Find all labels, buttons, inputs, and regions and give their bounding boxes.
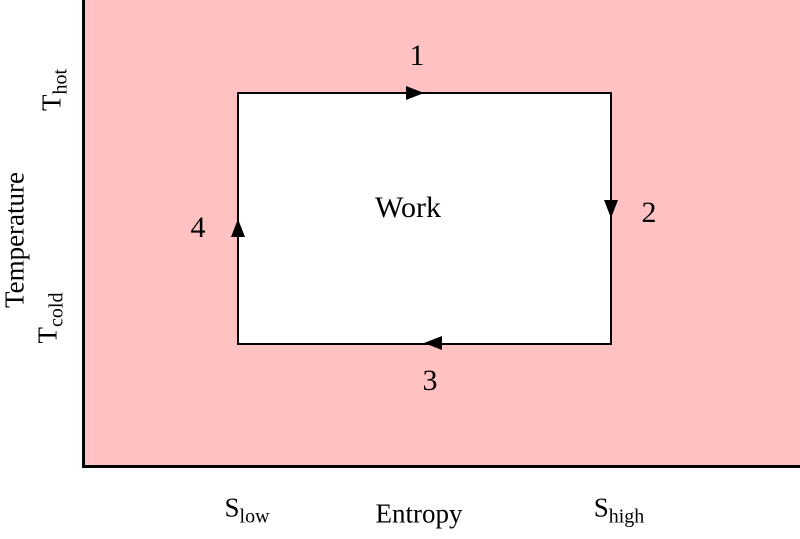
x-axis-line [82,465,800,468]
y-axis-line [82,0,85,468]
arrow-down-icon [604,200,618,218]
x-tick-s-high: Shigh [594,495,645,522]
work-label: Work [375,193,441,223]
y-tick-t-cold-subscript: cold [45,293,67,327]
y-tick-t-cold-base: T [33,327,63,344]
carnot-ts-diagram: 1 2 3 4 Work Thot Temperature Tcold Slow… [0,0,800,539]
x-tick-s-high-base: S [594,493,609,523]
y-tick-t-hot-subscript: hot [49,69,71,95]
y-axis-label: Temperature [2,172,29,308]
x-axis-label: Entropy [376,501,463,528]
x-tick-s-low: Slow [225,495,270,522]
y-tick-t-hot-base: T [37,95,67,112]
step-3-label: 3 [423,366,438,396]
step-2-label: 2 [642,198,657,228]
x-tick-s-high-subscript: high [609,505,645,527]
step-1-label: 1 [410,41,425,71]
arrow-up-icon [231,219,245,237]
arrow-left-icon [424,336,442,350]
y-tick-t-cold: Tcold [35,293,62,344]
step-4-label: 4 [191,213,206,243]
arrow-right-icon [406,86,424,100]
x-tick-s-low-base: S [225,493,240,523]
x-tick-s-low-subscript: low [240,505,270,527]
y-tick-t-hot: Thot [39,69,66,111]
